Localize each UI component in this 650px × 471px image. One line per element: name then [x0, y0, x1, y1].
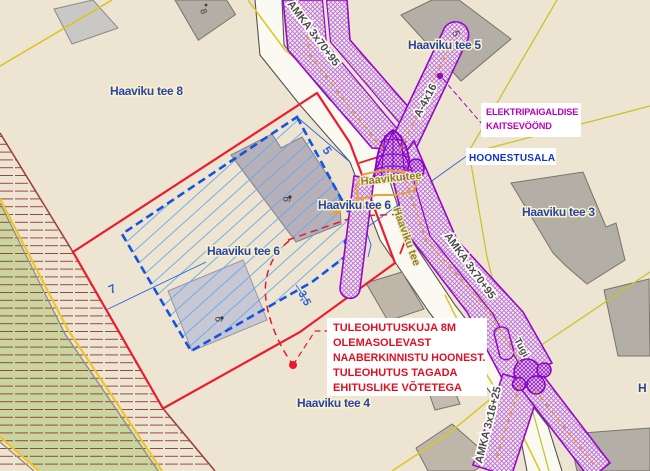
- svg-text:Haaviku tee 4: Haaviku tee 4: [297, 396, 370, 410]
- svg-text:NAABERKINNISTU HOONEST.: NAABERKINNISTU HOONEST.: [333, 352, 485, 364]
- svg-text:Haaviku tee 3: Haaviku tee 3: [522, 205, 595, 219]
- svg-text:KAITSEVÖÖND: KAITSEVÖÖND: [486, 121, 552, 131]
- svg-text:Haaviku tee 8: Haaviku tee 8: [110, 84, 183, 98]
- svg-text:Haaviku tee 6: Haaviku tee 6: [207, 244, 280, 258]
- svg-text:H: H: [638, 381, 647, 395]
- svg-text:TULEOHUTUSKUJA 8M: TULEOHUTUSKUJA 8M: [333, 322, 456, 334]
- svg-text:ELEKTRIPAIGALDISE: ELEKTRIPAIGALDISE: [486, 107, 578, 117]
- svg-text:Haaviku tee 5: Haaviku tee 5: [408, 38, 481, 52]
- svg-text:OLEMASOLEVAST: OLEMASOLEVAST: [333, 337, 431, 349]
- svg-text:EHITUSLIKE VÕTETEGA: EHITUSLIKE VÕTETEGA: [333, 381, 462, 394]
- svg-text:TULEOHUTUS TAGADA: TULEOHUTUS TAGADA: [333, 367, 458, 379]
- svg-text:Haaviku tee 6: Haaviku tee 6: [318, 198, 391, 212]
- svg-text:HOONESTUSALA: HOONESTUSALA: [469, 153, 555, 164]
